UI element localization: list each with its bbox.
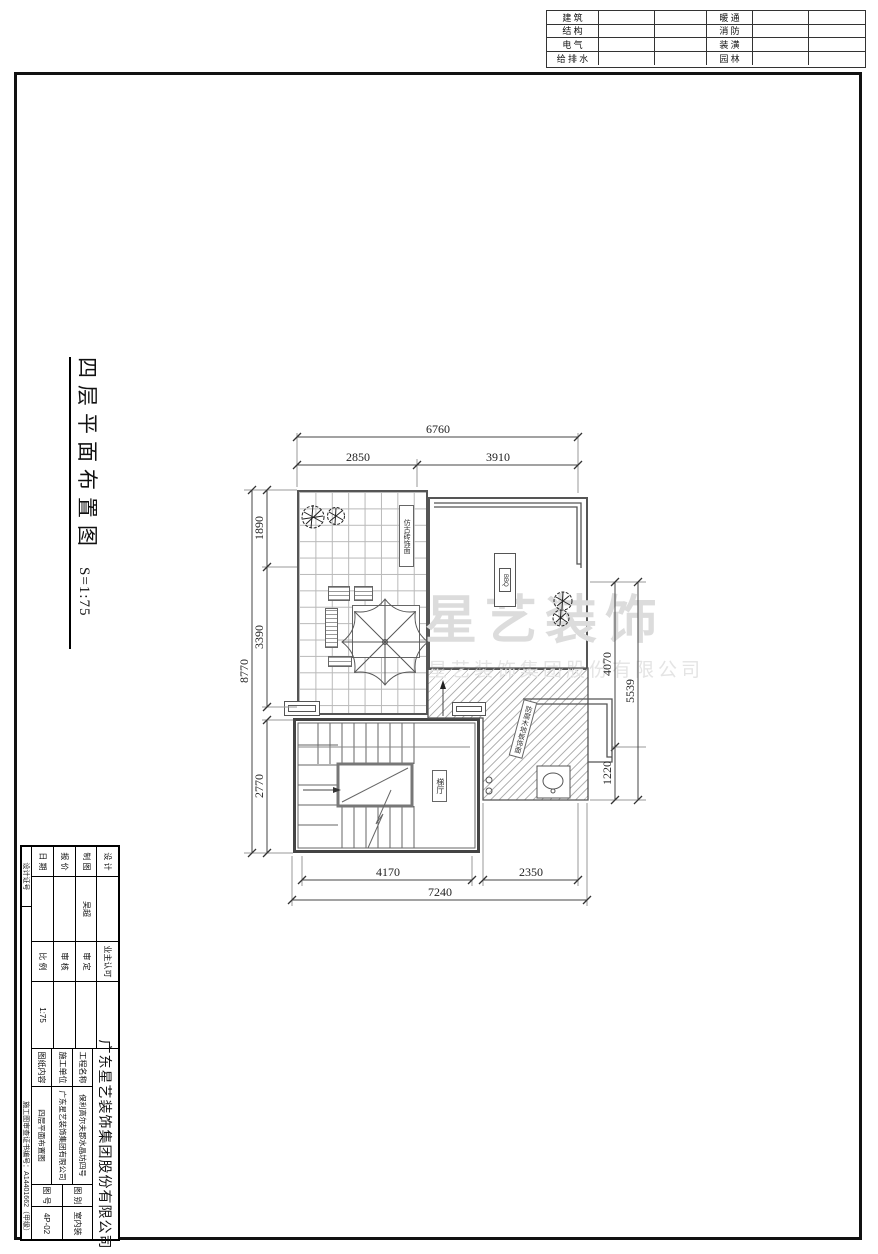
empty-cell xyxy=(655,25,707,39)
empty-cell xyxy=(809,52,865,66)
field-label: 审 定 xyxy=(75,942,97,982)
dim-right-overall: 5539 xyxy=(624,663,638,719)
sheet-number-value: 4P-02 xyxy=(32,1207,62,1240)
drawing-title-text: 四层平面布置图 xyxy=(75,357,99,553)
dim-bottom-seg2: 2350 xyxy=(503,866,559,880)
review-certificate-number: 施工图审查证书编号：A14401662（甲级） xyxy=(22,907,32,1239)
empty-cell xyxy=(753,38,809,52)
empty-cell xyxy=(599,11,655,25)
sheet-content-value: 四层平面布置图 xyxy=(32,1087,51,1184)
outdoor-table xyxy=(352,605,420,658)
chair xyxy=(328,656,352,667)
sheet-content-label: 图纸内容 xyxy=(32,1049,51,1087)
empty-cell xyxy=(809,11,865,25)
field-value: 吴超 xyxy=(75,877,97,942)
discipline-table: 建 筑 暖 通 结 构 消 防 电 气 装 潢 给 排 水 园 林 xyxy=(546,10,866,68)
scale-value: 1:75 xyxy=(32,982,54,1048)
chair xyxy=(328,586,350,601)
empty-cell xyxy=(655,11,707,25)
field-value xyxy=(97,877,119,942)
field-label: 业主认可 xyxy=(97,942,119,982)
empty-cell xyxy=(655,38,707,52)
field-value xyxy=(32,877,54,942)
sheet-type-value: 室内装 xyxy=(62,1207,92,1240)
builder-value: 广东星艺装饰集团有限公司 xyxy=(52,1087,71,1184)
sheet-id-grid: 图 别 室内装 图 号 4P-02 xyxy=(32,1185,92,1240)
drawing-title: 四层平面布置图 S=1:75 xyxy=(69,357,103,649)
field-label: 设 计 xyxy=(97,847,119,877)
project-name-value: 保利高尔夫郡水晶坊四号 xyxy=(73,1087,92,1184)
sheet-type-label: 图 别 xyxy=(62,1185,92,1207)
empty-cell xyxy=(599,25,655,39)
dim-right-seg2: 1220 xyxy=(601,745,615,801)
builder-label: 施工单位 xyxy=(52,1049,71,1087)
field-value xyxy=(54,982,76,1048)
field-label: 制 图 xyxy=(75,847,97,877)
empty-cell xyxy=(599,52,655,66)
field-label: 审 核 xyxy=(54,942,76,982)
side-cabinet xyxy=(325,608,338,648)
stair-hall-label: 梯厅 xyxy=(432,770,447,802)
discipline-label: 园 林 xyxy=(707,52,753,66)
sheet-number-label: 图 号 xyxy=(32,1185,62,1207)
field-value xyxy=(97,982,119,1048)
discipline-label: 给 排 水 xyxy=(547,52,599,66)
stair-room xyxy=(293,718,480,853)
empty-cell xyxy=(655,52,707,66)
drawing-title-scale: S=1:75 xyxy=(76,567,92,616)
empty-cell xyxy=(599,38,655,52)
empty-cell xyxy=(809,38,865,52)
dim-bottom-seg1: 4170 xyxy=(360,866,416,880)
chair xyxy=(354,586,373,601)
field-value xyxy=(75,982,97,1048)
field-label: 比 例 xyxy=(32,942,54,982)
company-name: 广东星艺装饰集团股份有限公司 xyxy=(92,1049,118,1240)
empty-cell xyxy=(809,25,865,39)
signoff-grid: 设 计 业主认可 制 图 吴超 审 定 报 价 审 核 日 期 比 例 1:75 xyxy=(32,847,118,1049)
discipline-label: 建 筑 xyxy=(547,11,599,25)
dim-left-seg1: 1890 xyxy=(253,500,267,556)
title-block: 设 计 业主认可 制 图 吴超 审 定 报 价 审 核 日 期 比 例 1:75… xyxy=(20,845,120,1241)
project-name-label: 工程名称 xyxy=(73,1049,92,1087)
dim-right-seg1: 4070 xyxy=(601,636,615,692)
dim-top-seg1: 2850 xyxy=(330,451,386,465)
empty-cell xyxy=(753,52,809,66)
planter-box xyxy=(452,702,486,716)
dim-left-seg2: 3390 xyxy=(253,609,267,665)
discipline-label: 装 潢 xyxy=(707,38,753,52)
field-label: 报 价 xyxy=(54,847,76,877)
field-label: 日 期 xyxy=(32,847,54,877)
design-cert-label: 设计证号 xyxy=(22,847,31,907)
dim-bottom-overall: 7240 xyxy=(412,886,468,900)
dim-left-seg3: 2770 xyxy=(253,758,267,814)
field-value xyxy=(54,877,76,942)
dim-top-overall: 6760 xyxy=(410,423,466,437)
bbq-label: BBQ xyxy=(499,568,511,592)
discipline-label: 暖 通 xyxy=(707,11,753,25)
terrace-finish-label: 仿古砖饰面 xyxy=(399,505,414,567)
discipline-label: 电 气 xyxy=(547,38,599,52)
drawing-sheet: { "disciplines": { "left": ["建 筑", "结 构"… xyxy=(0,0,878,1254)
empty-cell xyxy=(753,11,809,25)
empty-cell xyxy=(753,25,809,39)
dim-left-overall: 8770 xyxy=(238,643,252,699)
planter-box xyxy=(284,701,320,716)
bbq-island: BBQ xyxy=(494,553,516,607)
discipline-label: 消 防 xyxy=(707,25,753,39)
dim-top-seg2: 3910 xyxy=(470,451,526,465)
discipline-label: 结 构 xyxy=(547,25,599,39)
